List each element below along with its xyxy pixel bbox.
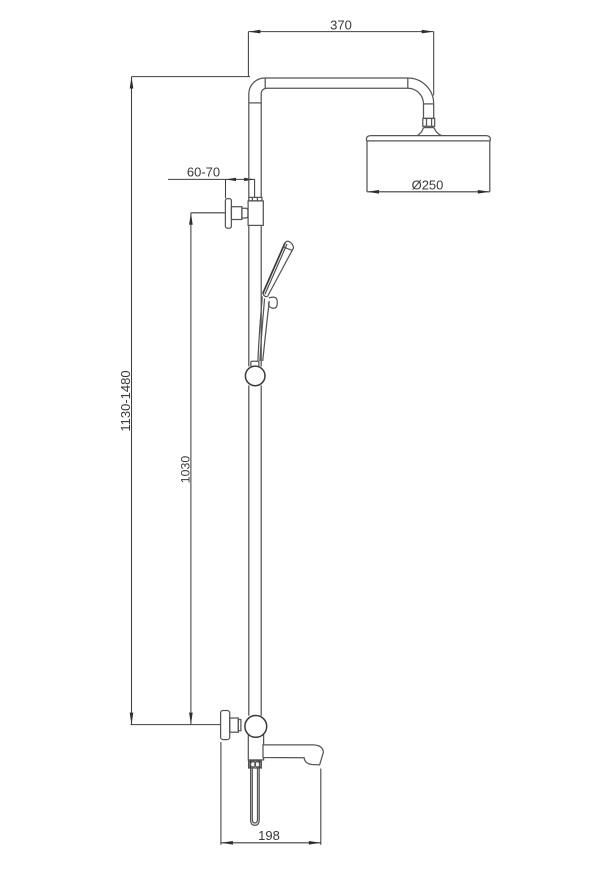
svg-text:1130-1480: 1130-1480 (118, 370, 133, 431)
svg-text:370: 370 (330, 18, 352, 33)
svg-text:Ø250: Ø250 (412, 177, 444, 192)
svg-text:60-70: 60-70 (187, 165, 220, 180)
svg-text:198: 198 (258, 828, 280, 843)
svg-text:1030: 1030 (179, 456, 193, 484)
